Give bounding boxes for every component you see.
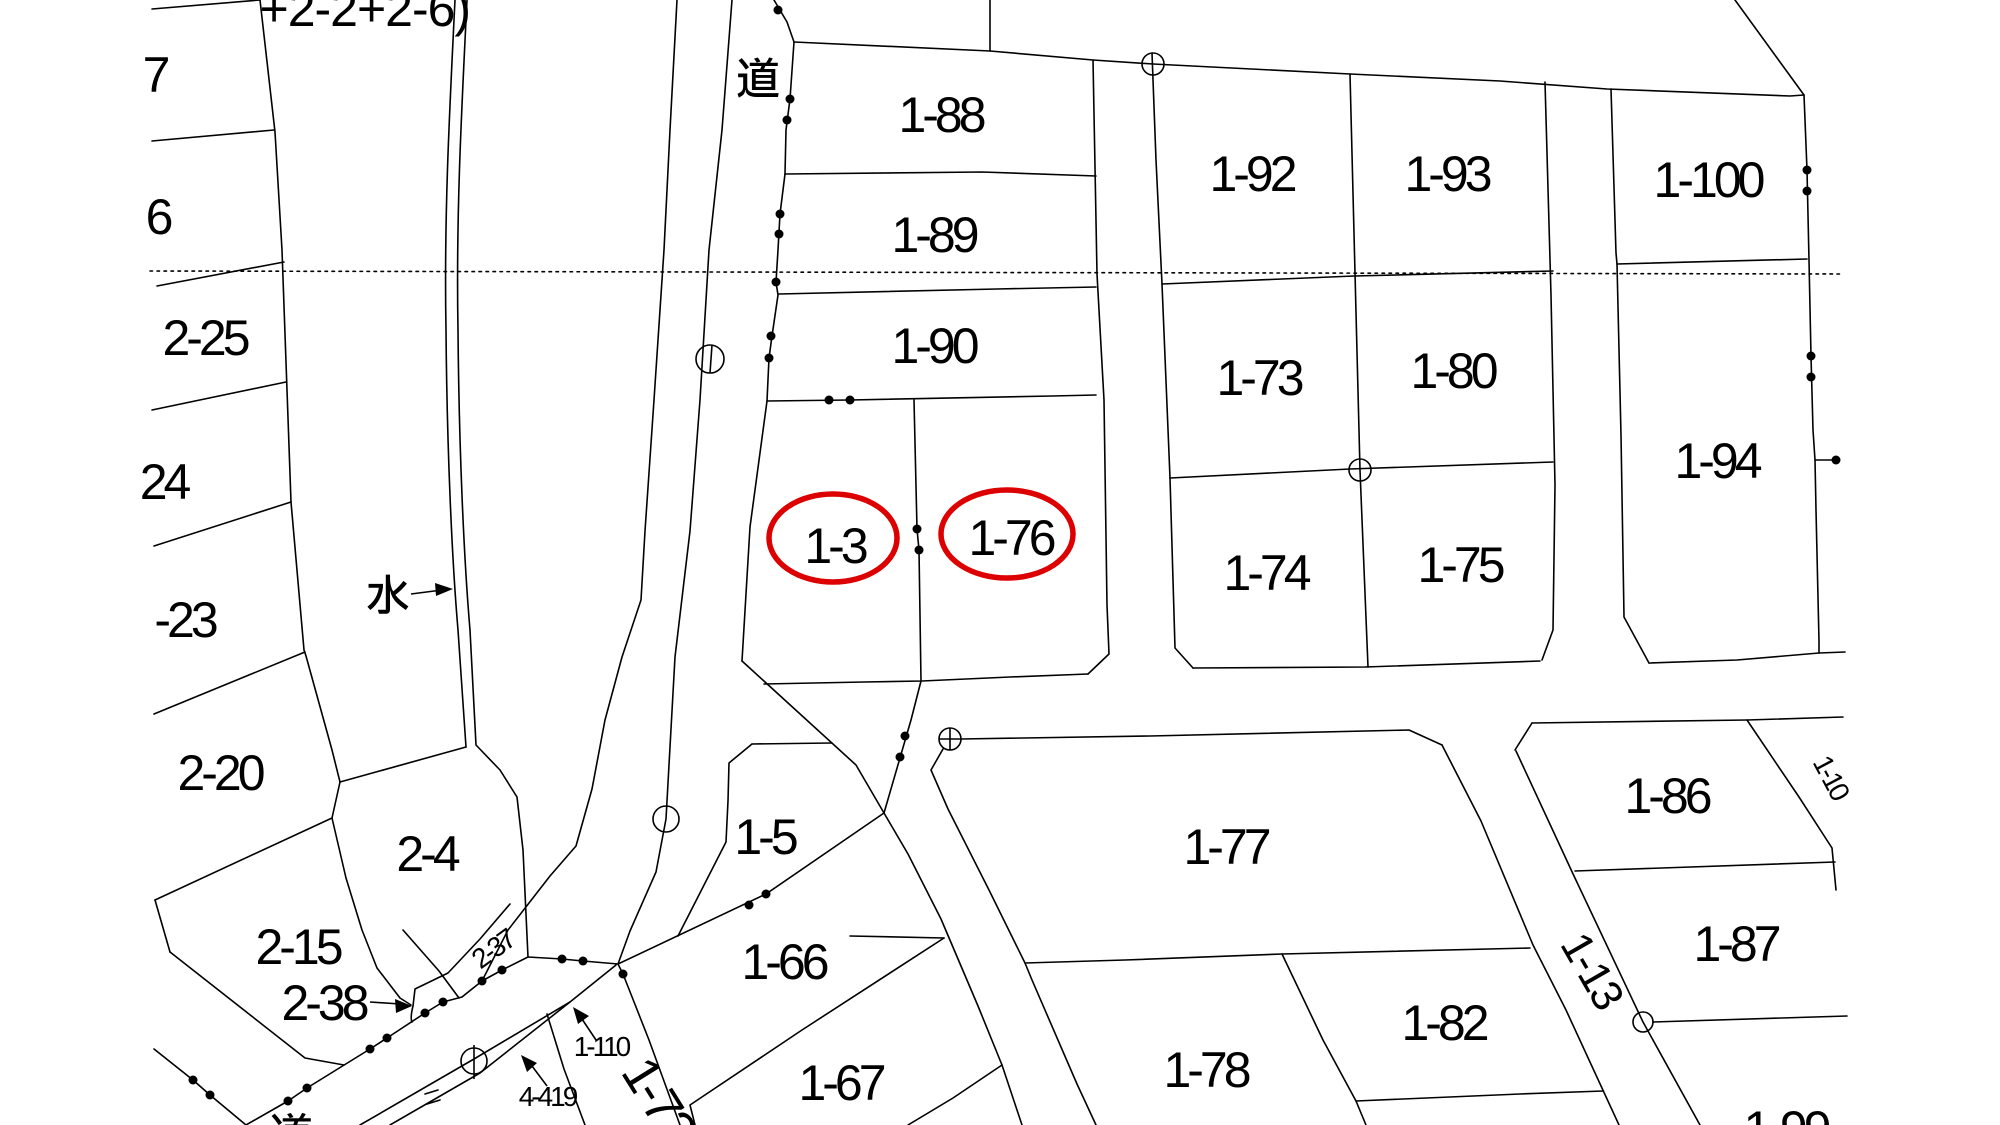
svg-text:1-100: 1-100: [1654, 152, 1764, 208]
svg-text:1-76: 1-76: [968, 510, 1054, 566]
svg-text:1-77: 1-77: [1183, 819, 1269, 875]
svg-text:1-78: 1-78: [1163, 1042, 1249, 1098]
svg-text:2-25: 2-25: [162, 310, 248, 366]
svg-text:2-15: 2-15: [255, 919, 341, 975]
svg-text:-23: -23: [154, 592, 216, 648]
svg-text:1-66: 1-66: [741, 934, 827, 990]
svg-text:1-99: 1-99: [1743, 1101, 1829, 1125]
svg-text:1-73: 1-73: [1216, 350, 1302, 406]
svg-text:1-110: 1-110: [574, 1031, 631, 1062]
svg-text:1-5: 1-5: [734, 809, 796, 865]
svg-text:1-92: 1-92: [1209, 146, 1295, 202]
svg-text:1-3: 1-3: [804, 518, 866, 574]
svg-text:1-94: 1-94: [1674, 433, 1761, 489]
svg-text:2-20: 2-20: [177, 745, 263, 801]
svg-text:24: 24: [140, 454, 191, 510]
svg-text:2-38: 2-38: [281, 975, 367, 1031]
svg-text:1-87: 1-87: [1693, 916, 1779, 972]
svg-text:1-93: 1-93: [1404, 146, 1490, 202]
svg-text:2-4: 2-4: [396, 826, 459, 882]
svg-text:1-88: 1-88: [898, 87, 984, 143]
svg-text:4-419: 4-419: [519, 1081, 578, 1112]
svg-text:1-89: 1-89: [891, 207, 977, 263]
svg-text:+2-2+2-6): +2-2+2-6): [260, 0, 471, 37]
svg-text:1-86: 1-86: [1624, 768, 1710, 824]
svg-text:6: 6: [146, 189, 172, 245]
svg-text:1-74: 1-74: [1223, 545, 1310, 601]
svg-text:1-82: 1-82: [1401, 995, 1487, 1051]
svg-text:1-80: 1-80: [1410, 343, 1496, 399]
svg-text:1-90: 1-90: [891, 318, 977, 374]
svg-text:1-75: 1-75: [1417, 537, 1503, 593]
svg-text:7: 7: [143, 47, 169, 103]
svg-text:1-67: 1-67: [798, 1055, 884, 1111]
